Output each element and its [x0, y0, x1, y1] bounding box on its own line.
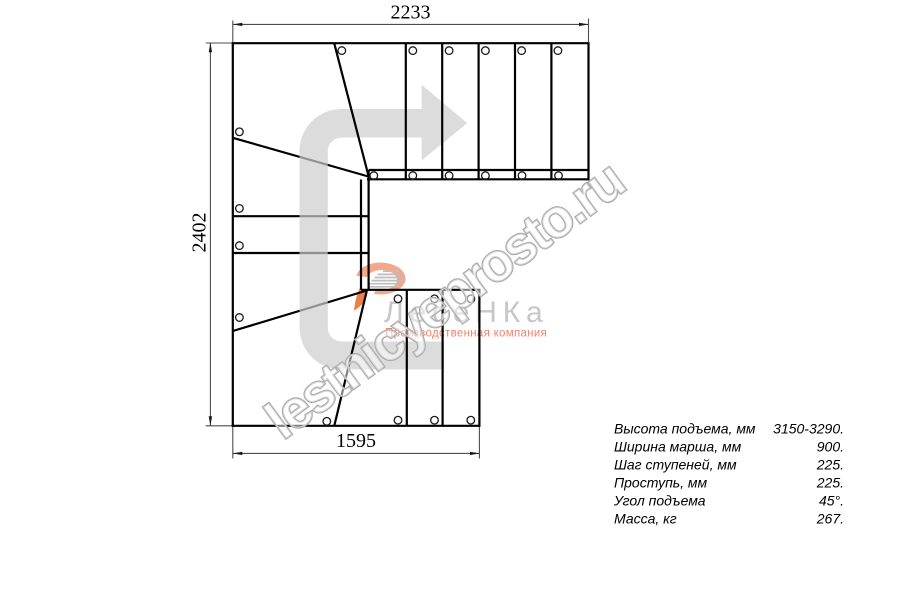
svg-text:Шаг ступеней, мм: Шаг ступеней, мм — [614, 456, 737, 472]
svg-text:45°.: 45°. — [819, 492, 844, 508]
svg-text:Масса, кг: Масса, кг — [614, 510, 677, 526]
svg-text:225.: 225. — [816, 456, 844, 472]
svg-text:Угол подъема: Угол подъема — [613, 492, 706, 508]
svg-text:2402: 2402 — [189, 213, 211, 253]
svg-text:900.: 900. — [817, 438, 844, 454]
svg-text:3150-3290.: 3150-3290. — [773, 420, 844, 436]
svg-text:Высота подъема, мм: Высота подъема, мм — [614, 420, 756, 436]
svg-text:1595: 1595 — [336, 430, 376, 452]
svg-text:267.: 267. — [816, 510, 844, 526]
svg-text:Ширина марша, мм: Ширина марша, мм — [614, 438, 742, 454]
svg-text:225.: 225. — [816, 474, 844, 490]
svg-text:2233: 2233 — [391, 2, 431, 24]
svg-text:Проступь, мм: Проступь, мм — [614, 474, 708, 490]
